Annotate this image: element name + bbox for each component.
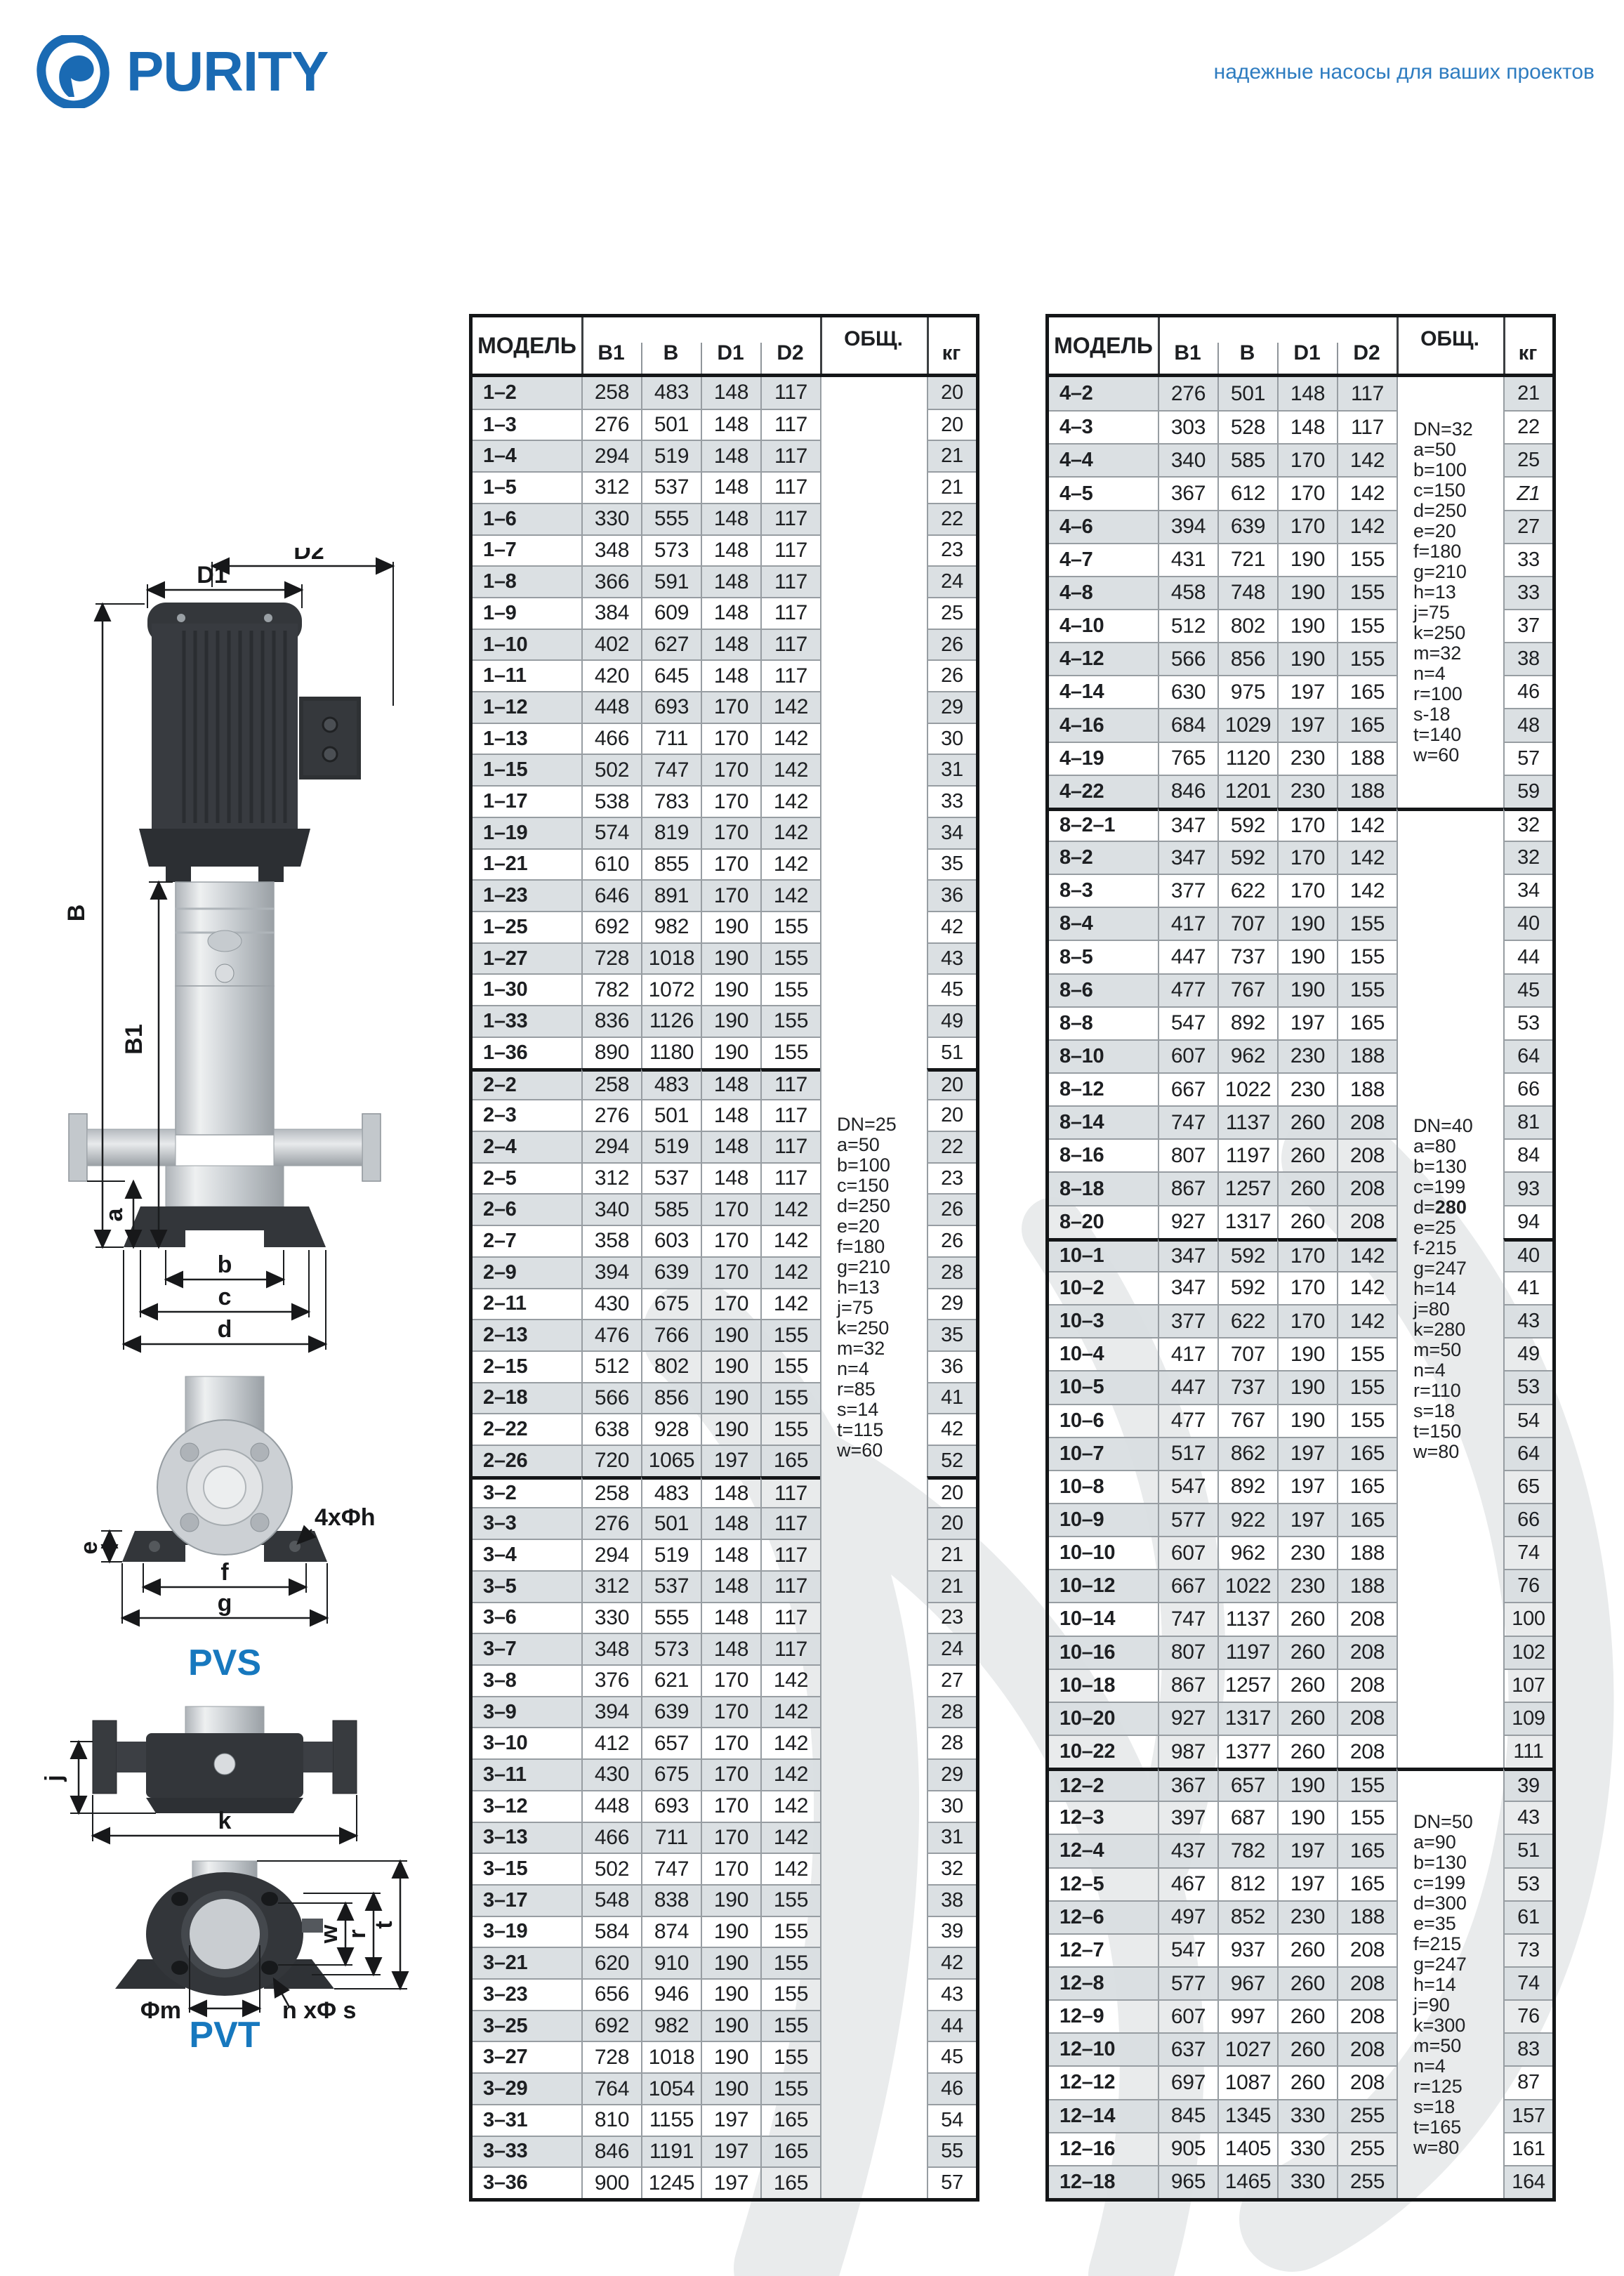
model-cell: 4–7 bbox=[1049, 543, 1158, 576]
dim-value-cell: 483 bbox=[641, 1476, 701, 1508]
dim-value-cell: 497 bbox=[1158, 1900, 1217, 1933]
dim-value-cell: 170 bbox=[701, 1727, 760, 1758]
dim-value-cell: 197 bbox=[1277, 708, 1337, 741]
dim-value-cell: 367 bbox=[1158, 1768, 1217, 1801]
dim-value-cell: 555 bbox=[641, 503, 701, 534]
kg-cell: 107 bbox=[1503, 1669, 1552, 1702]
dim-value-cell: 1405 bbox=[1217, 2132, 1277, 2165]
kg-cell: 38 bbox=[927, 1884, 976, 1916]
dim-value-cell: 687 bbox=[1217, 1801, 1277, 1834]
model-cell: 2–5 bbox=[473, 1162, 581, 1194]
dim-value-cell: 142 bbox=[760, 879, 820, 911]
kg-cell: 26 bbox=[927, 1193, 976, 1225]
dim-value-cell: 720 bbox=[581, 1445, 641, 1476]
dim-value-cell: 622 bbox=[1217, 874, 1277, 907]
dim-value-cell: 856 bbox=[1217, 642, 1277, 675]
dim-value-cell: 188 bbox=[1337, 1039, 1397, 1072]
model-cell: 3–3 bbox=[473, 1507, 581, 1539]
dim-value-cell: 117 bbox=[760, 440, 820, 471]
dim-value-cell: 208 bbox=[1337, 1105, 1397, 1138]
model-cell: 1–3 bbox=[473, 409, 581, 440]
model-cell: 2–4 bbox=[473, 1131, 581, 1162]
kg-cell: 109 bbox=[1503, 1702, 1552, 1735]
dim-value-cell: 639 bbox=[641, 1256, 701, 1288]
kg-cell: 21 bbox=[927, 440, 976, 471]
model-cell: 1–27 bbox=[473, 942, 581, 974]
model-cell: 10–9 bbox=[1049, 1503, 1158, 1536]
model-cell: 8–2–1 bbox=[1049, 808, 1158, 841]
dim-value-cell: 170 bbox=[701, 1853, 760, 1884]
dim-value-cell: 836 bbox=[581, 1005, 641, 1037]
dim-value-cell: 639 bbox=[1217, 510, 1277, 543]
dim-value-cell: 155 bbox=[1337, 1370, 1397, 1403]
model-cell: 1–4 bbox=[473, 440, 581, 471]
kg-cell: 20 bbox=[927, 409, 976, 440]
dim-value-cell: 528 bbox=[1217, 410, 1277, 443]
dim-value-cell: 693 bbox=[641, 691, 701, 723]
kg-cell: 76 bbox=[1503, 1569, 1552, 1602]
kg-cell: 53 bbox=[1503, 1006, 1552, 1039]
dim-value-cell: 891 bbox=[641, 879, 701, 911]
dim-value-cell: 155 bbox=[760, 1005, 820, 1037]
dim-value-cell: 476 bbox=[581, 1319, 641, 1350]
kg-cell: 39 bbox=[1503, 1768, 1552, 1801]
kg-cell: 44 bbox=[1503, 940, 1552, 973]
dim-value-cell: 170 bbox=[701, 1664, 760, 1696]
model-cell: 2–9 bbox=[473, 1256, 581, 1288]
kg-cell: 32 bbox=[927, 1853, 976, 1884]
kg-cell: 43 bbox=[927, 942, 976, 974]
dim-value-cell: 142 bbox=[760, 1225, 820, 1256]
model-cell: 10–16 bbox=[1049, 1636, 1158, 1669]
dim-value-cell: 165 bbox=[760, 2104, 820, 2136]
model-cell: 12–7 bbox=[1049, 1933, 1158, 1966]
dim-value-cell: 260 bbox=[1277, 1999, 1337, 2032]
dim-value-cell: 155 bbox=[1337, 907, 1397, 940]
dim-value-cell: 347 bbox=[1158, 808, 1217, 841]
model-cell: 8–16 bbox=[1049, 1138, 1158, 1171]
dim-value-cell: 197 bbox=[701, 2136, 760, 2167]
model-cell: 3–7 bbox=[473, 1633, 581, 1664]
dim-value-cell: 155 bbox=[760, 1947, 820, 1978]
dim-value-cell: 190 bbox=[701, 2072, 760, 2104]
dim-value-cell: 155 bbox=[1337, 609, 1397, 642]
model-cell: 1–2 bbox=[473, 377, 581, 409]
dim-value-cell: 819 bbox=[641, 817, 701, 848]
model-cell: 12–3 bbox=[1049, 1801, 1158, 1834]
kg-cell: 40 bbox=[1503, 907, 1552, 940]
model-cell: 3–6 bbox=[473, 1602, 581, 1633]
dim-value-cell: 303 bbox=[1158, 410, 1217, 443]
dim-value-cell: 330 bbox=[581, 503, 641, 534]
kg-cell: 83 bbox=[1503, 2032, 1552, 2065]
dim-value-cell: 155 bbox=[760, 1319, 820, 1350]
dim-value-cell: 501 bbox=[641, 409, 701, 440]
kg-cell: 20 bbox=[927, 1507, 976, 1539]
dim-value-cell: 170 bbox=[1277, 1304, 1337, 1337]
dim-value-cell: 165 bbox=[1337, 1834, 1397, 1867]
dim-value-cell: 1072 bbox=[641, 973, 701, 1005]
kg-cell: 20 bbox=[927, 377, 976, 409]
dim-label-d2: D2 bbox=[293, 548, 324, 565]
dim-value-cell: 477 bbox=[1158, 1404, 1217, 1437]
dim-value-cell: 170 bbox=[701, 1193, 760, 1225]
dim-value-cell: 982 bbox=[641, 2010, 701, 2041]
dim-value-cell: 208 bbox=[1337, 2065, 1397, 2098]
kg-cell: 20 bbox=[927, 1068, 976, 1100]
model-cell: 12–6 bbox=[1049, 1900, 1158, 1933]
kg-cell: 34 bbox=[927, 817, 976, 848]
dim-value-cell: 188 bbox=[1337, 775, 1397, 808]
dim-value-cell: 782 bbox=[581, 973, 641, 1005]
dim-value-cell: 693 bbox=[641, 1790, 701, 1822]
kg-cell: 28 bbox=[927, 1727, 976, 1758]
kg-cell: 31 bbox=[927, 754, 976, 785]
pvs-side-view: D2 D1 bbox=[63, 548, 393, 1350]
dim-value-cell: 117 bbox=[760, 1507, 820, 1539]
dim-value-cell: 1027 bbox=[1217, 2032, 1277, 2065]
kg-cell: 81 bbox=[1503, 1105, 1552, 1138]
dim-value-cell: 519 bbox=[641, 440, 701, 471]
dimension-table-left: МОДЕЛЬB1BD1D2ОБЩ.кг1–2258483148117201–32… bbox=[469, 314, 979, 2202]
dim-value-cell: 260 bbox=[1277, 1933, 1337, 1966]
dim-value-cell: 728 bbox=[581, 2041, 641, 2072]
header-b: B bbox=[1217, 317, 1277, 377]
model-cell: 4–16 bbox=[1049, 708, 1158, 741]
dim-value-cell: 612 bbox=[1217, 476, 1277, 509]
dim-value-cell: 347 bbox=[1158, 1238, 1217, 1271]
model-cell: 12–14 bbox=[1049, 2099, 1158, 2132]
dim-value-cell: 260 bbox=[1277, 1602, 1337, 1635]
dim-value-cell: 747 bbox=[1158, 1105, 1217, 1138]
kg-cell: 38 bbox=[1503, 642, 1552, 675]
dim-value-cell: 312 bbox=[581, 471, 641, 503]
dim-value-cell: 155 bbox=[760, 2041, 820, 2072]
dim-value-cell: 148 bbox=[701, 597, 760, 629]
model-cell: 3–13 bbox=[473, 1822, 581, 1853]
dim-value-cell: 142 bbox=[760, 1288, 820, 1320]
dim-value-cell: 208 bbox=[1337, 1602, 1397, 1635]
pvs-front-view: 4xΦh e f g PVS bbox=[76, 1376, 376, 1683]
model-cell: 4–14 bbox=[1049, 675, 1158, 708]
model-cell: 1–5 bbox=[473, 471, 581, 503]
dim-value-cell: 190 bbox=[1277, 940, 1337, 973]
dim-value-cell: 155 bbox=[760, 1413, 820, 1445]
model-cell: 12–12 bbox=[1049, 2065, 1158, 2098]
dim-value-cell: 170 bbox=[1277, 510, 1337, 543]
kg-cell: 36 bbox=[927, 1350, 976, 1382]
dim-value-cell: 142 bbox=[1337, 476, 1397, 509]
kg-cell: 66 bbox=[1503, 1503, 1552, 1536]
dim-value-cell: 258 bbox=[581, 377, 641, 409]
dim-value-cell: 477 bbox=[1158, 973, 1217, 1006]
dim-value-cell: 667 bbox=[1158, 1072, 1217, 1105]
dim-value-cell: 965 bbox=[1158, 2165, 1217, 2198]
dim-value-cell: 260 bbox=[1277, 1205, 1337, 1238]
header-b1: B1 bbox=[581, 317, 641, 377]
kg-cell: 64 bbox=[1503, 1039, 1552, 1072]
dim-value-cell: 645 bbox=[641, 659, 701, 691]
dim-value-cell: 142 bbox=[760, 1822, 820, 1853]
dim-value-cell: 928 bbox=[641, 1413, 701, 1445]
dim-value-cell: 148 bbox=[701, 1602, 760, 1633]
model-cell: 4–3 bbox=[1049, 410, 1158, 443]
dim-value-cell: 366 bbox=[581, 565, 641, 597]
dim-value-cell: 260 bbox=[1277, 1735, 1337, 1768]
pvt-flange-view: w r t Φm n xΦ s PVT bbox=[115, 1861, 407, 2051]
model-cell: 1–19 bbox=[473, 817, 581, 848]
kg-cell: 21 bbox=[1503, 377, 1552, 410]
dim-value-cell: 117 bbox=[760, 1099, 820, 1131]
dim-label-b1: B1 bbox=[121, 1024, 147, 1054]
header-b1: B1 bbox=[1158, 317, 1217, 377]
kg-cell: 102 bbox=[1503, 1636, 1552, 1669]
model-cell: 1–25 bbox=[473, 911, 581, 942]
kg-cell: 111 bbox=[1503, 1735, 1552, 1768]
pump-dimension-drawings: D2 D1 bbox=[28, 548, 463, 2051]
kg-cell: 54 bbox=[927, 2104, 976, 2136]
dim-value-cell: 584 bbox=[581, 1916, 641, 1947]
model-cell: 10–22 bbox=[1049, 1735, 1158, 1768]
dim-value-cell: 117 bbox=[760, 659, 820, 691]
dim-value-cell: 148 bbox=[701, 1507, 760, 1539]
dim-value-cell: 312 bbox=[581, 1162, 641, 1194]
dim-value-cell: 117 bbox=[760, 1633, 820, 1664]
dim-value-cell: 170 bbox=[701, 1822, 760, 1853]
dim-value-cell: 208 bbox=[1337, 1933, 1397, 1966]
dim-value-cell: 170 bbox=[701, 879, 760, 911]
dim-value-cell: 190 bbox=[1277, 973, 1337, 1006]
dim-value-cell: 377 bbox=[1158, 874, 1217, 907]
dim-value-cell: 255 bbox=[1337, 2165, 1397, 2198]
kg-cell: 49 bbox=[1503, 1337, 1552, 1370]
dim-value-cell: 1137 bbox=[1217, 1105, 1277, 1138]
dim-value-cell: 260 bbox=[1277, 2032, 1337, 2065]
model-cell: 10–12 bbox=[1049, 1569, 1158, 1602]
dim-value-cell: 188 bbox=[1337, 1900, 1397, 1933]
kg-cell: 37 bbox=[1503, 609, 1552, 642]
dim-value-cell: 260 bbox=[1277, 1171, 1337, 1204]
kg-cell: 35 bbox=[927, 848, 976, 880]
dimensions-note: DN=32a=50b=100c=150d=250e=20f=180g=210h=… bbox=[1397, 377, 1503, 808]
dim-value-cell: 260 bbox=[1277, 1669, 1337, 1702]
dim-value-cell: 330 bbox=[1277, 2165, 1337, 2198]
dim-value-cell: 1018 bbox=[641, 942, 701, 974]
dim-value-cell: 1022 bbox=[1217, 1569, 1277, 1602]
dim-value-cell: 155 bbox=[760, 911, 820, 942]
dim-value-cell: 230 bbox=[1277, 775, 1337, 808]
dim-value-cell: 592 bbox=[1217, 841, 1277, 874]
kg-cell: 32 bbox=[1503, 808, 1552, 841]
dim-value-cell: 148 bbox=[701, 1476, 760, 1508]
dim-value-cell: 519 bbox=[641, 1539, 701, 1570]
model-cell: 10–5 bbox=[1049, 1370, 1158, 1403]
dim-value-cell: 117 bbox=[1337, 377, 1397, 410]
dim-value-cell: 255 bbox=[1337, 2099, 1397, 2132]
model-cell: 3–29 bbox=[473, 2072, 581, 2104]
dim-value-cell: 208 bbox=[1337, 1735, 1397, 1768]
dim-label-a: a bbox=[101, 1207, 128, 1221]
dim-value-cell: 155 bbox=[1337, 973, 1397, 1006]
dim-value-cell: 697 bbox=[1158, 2065, 1217, 2098]
dim-value-cell: 276 bbox=[581, 1507, 641, 1539]
dim-value-cell: 384 bbox=[581, 597, 641, 629]
dim-value-cell: 190 bbox=[1277, 543, 1337, 576]
dim-value-cell: 431 bbox=[1158, 543, 1217, 576]
dim-value-cell: 1054 bbox=[641, 2072, 701, 2104]
dim-value-cell: 142 bbox=[760, 1727, 820, 1758]
dim-value-cell: 148 bbox=[701, 471, 760, 503]
dimensions-note: DN=50a=90b=130c=199d=300e=35f=215g=247h=… bbox=[1397, 1768, 1503, 2198]
dim-value-cell: 165 bbox=[1337, 1437, 1397, 1470]
dim-value-cell: 430 bbox=[581, 1758, 641, 1790]
dim-value-cell: 170 bbox=[701, 691, 760, 723]
dim-value-cell: 737 bbox=[1217, 940, 1277, 973]
dim-value-cell: 747 bbox=[641, 754, 701, 785]
kg-cell: 59 bbox=[1503, 775, 1552, 808]
dim-value-cell: 448 bbox=[581, 691, 641, 723]
dim-value-cell: 1317 bbox=[1217, 1205, 1277, 1238]
dim-value-cell: 447 bbox=[1158, 940, 1217, 973]
dim-value-cell: 190 bbox=[701, 1978, 760, 2010]
dim-value-cell: 142 bbox=[760, 785, 820, 817]
kg-cell: 74 bbox=[1503, 1536, 1552, 1569]
dim-value-cell: 927 bbox=[1158, 1702, 1217, 1735]
kg-cell: 24 bbox=[927, 565, 976, 597]
dim-value-cell: 170 bbox=[701, 848, 760, 880]
dim-value-cell: 609 bbox=[641, 597, 701, 629]
dim-value-cell: 637 bbox=[1158, 2032, 1217, 2065]
dim-value-cell: 155 bbox=[760, 1037, 820, 1068]
dim-value-cell: 117 bbox=[760, 1570, 820, 1602]
kg-cell: 20 bbox=[927, 1476, 976, 1508]
dim-value-cell: 1191 bbox=[641, 2136, 701, 2167]
dim-value-cell: 1126 bbox=[641, 1005, 701, 1037]
dim-label-f: f bbox=[220, 1559, 229, 1586]
dim-label-r: r bbox=[344, 1929, 371, 1938]
dim-value-cell: 190 bbox=[1277, 609, 1337, 642]
dim-value-cell: 728 bbox=[581, 942, 641, 974]
dim-value-cell: 975 bbox=[1217, 675, 1277, 708]
kg-cell: 23 bbox=[927, 1602, 976, 1633]
dim-label-d: d bbox=[218, 1316, 232, 1343]
dim-value-cell: 148 bbox=[701, 503, 760, 534]
dim-value-cell: 458 bbox=[1158, 576, 1217, 609]
dim-value-cell: 905 bbox=[1158, 2132, 1217, 2165]
model-cell: 4–6 bbox=[1049, 510, 1158, 543]
dim-label-n-phi-s: n xΦ s bbox=[282, 1997, 356, 2024]
dim-value-cell: 547 bbox=[1158, 1470, 1217, 1503]
dim-value-cell: 170 bbox=[701, 785, 760, 817]
model-cell: 3–36 bbox=[473, 2166, 581, 2198]
dim-value-cell: 142 bbox=[760, 1664, 820, 1696]
dim-value-cell: 656 bbox=[581, 1978, 641, 2010]
dim-value-cell: 1155 bbox=[641, 2104, 701, 2136]
kg-cell: 49 bbox=[927, 1005, 976, 1037]
dim-value-cell: 155 bbox=[760, 1978, 820, 2010]
dim-value-cell: 190 bbox=[701, 1947, 760, 1978]
header-d1: D1 bbox=[1277, 317, 1337, 377]
dim-value-cell: 197 bbox=[1277, 1437, 1337, 1470]
dim-value-cell: 603 bbox=[641, 1225, 701, 1256]
dim-value-cell: 347 bbox=[1158, 841, 1217, 874]
kg-cell: 45 bbox=[927, 973, 976, 1005]
dim-value-cell: 547 bbox=[1158, 1006, 1217, 1039]
dim-value-cell: 402 bbox=[581, 629, 641, 660]
dim-value-cell: 502 bbox=[581, 1853, 641, 1884]
dim-value-cell: 197 bbox=[1277, 1470, 1337, 1503]
dim-value-cell: 845 bbox=[1158, 2099, 1217, 2132]
model-cell: 12–8 bbox=[1049, 1966, 1158, 1999]
dim-value-cell: 155 bbox=[760, 973, 820, 1005]
dim-value-cell: 165 bbox=[1337, 675, 1397, 708]
model-cell: 3–33 bbox=[473, 2136, 581, 2167]
dim-value-cell: 142 bbox=[1337, 1271, 1397, 1304]
dim-value-cell: 675 bbox=[641, 1288, 701, 1320]
model-cell: 1–23 bbox=[473, 879, 581, 911]
dim-value-cell: 276 bbox=[1158, 377, 1217, 410]
dim-value-cell: 1245 bbox=[641, 2166, 701, 2198]
kg-cell: 57 bbox=[1503, 742, 1552, 775]
dim-label-c: c bbox=[218, 1284, 232, 1310]
model-cell: 10–6 bbox=[1049, 1404, 1158, 1437]
kg-cell: 26 bbox=[927, 659, 976, 691]
dim-value-cell: 276 bbox=[581, 1099, 641, 1131]
dim-value-cell: 170 bbox=[701, 817, 760, 848]
model-cell: 2–15 bbox=[473, 1350, 581, 1382]
dim-value-cell: 577 bbox=[1158, 1503, 1217, 1536]
model-cell: 10–3 bbox=[1049, 1304, 1158, 1337]
kg-cell: 66 bbox=[1503, 1072, 1552, 1105]
kg-cell: 27 bbox=[927, 1664, 976, 1696]
kg-cell: 100 bbox=[1503, 1602, 1552, 1635]
dim-value-cell: 892 bbox=[1217, 1006, 1277, 1039]
dim-value-cell: 260 bbox=[1277, 1702, 1337, 1735]
dim-value-cell: 646 bbox=[581, 879, 641, 911]
kg-cell: 23 bbox=[927, 1162, 976, 1194]
model-cell: 4–12 bbox=[1049, 642, 1158, 675]
model-cell: 10–8 bbox=[1049, 1470, 1158, 1503]
model-cell: 1–12 bbox=[473, 691, 581, 723]
model-cell: 8–4 bbox=[1049, 907, 1158, 940]
dim-label-e: e bbox=[76, 1541, 103, 1555]
dim-value-cell: 348 bbox=[581, 534, 641, 566]
dim-value-cell: 610 bbox=[581, 848, 641, 880]
dim-value-cell: 148 bbox=[701, 659, 760, 691]
dim-value-cell: 117 bbox=[760, 409, 820, 440]
dim-value-cell: 197 bbox=[1277, 675, 1337, 708]
dim-value-cell: 190 bbox=[1277, 1337, 1337, 1370]
dim-value-cell: 260 bbox=[1277, 1636, 1337, 1669]
kg-cell: 34 bbox=[1503, 874, 1552, 907]
dim-value-cell: 208 bbox=[1337, 1138, 1397, 1171]
dim-value-cell: 1029 bbox=[1217, 708, 1277, 741]
dim-value-cell: 782 bbox=[1217, 1834, 1277, 1867]
kg-cell: 33 bbox=[1503, 576, 1552, 609]
kg-cell: 25 bbox=[927, 597, 976, 629]
kg-cell: 35 bbox=[927, 1319, 976, 1350]
model-cell: 8–14 bbox=[1049, 1105, 1158, 1138]
dim-value-cell: 165 bbox=[760, 1445, 820, 1476]
kg-cell: 22 bbox=[927, 503, 976, 534]
dim-value-cell: 197 bbox=[1277, 1834, 1337, 1867]
dim-value-cell: 148 bbox=[701, 1539, 760, 1570]
kg-cell: 42 bbox=[927, 1413, 976, 1445]
dim-value-cell: 208 bbox=[1337, 1205, 1397, 1238]
dim-value-cell: 766 bbox=[641, 1319, 701, 1350]
kg-cell: 20 bbox=[927, 1099, 976, 1131]
header-d2: D2 bbox=[760, 317, 820, 377]
